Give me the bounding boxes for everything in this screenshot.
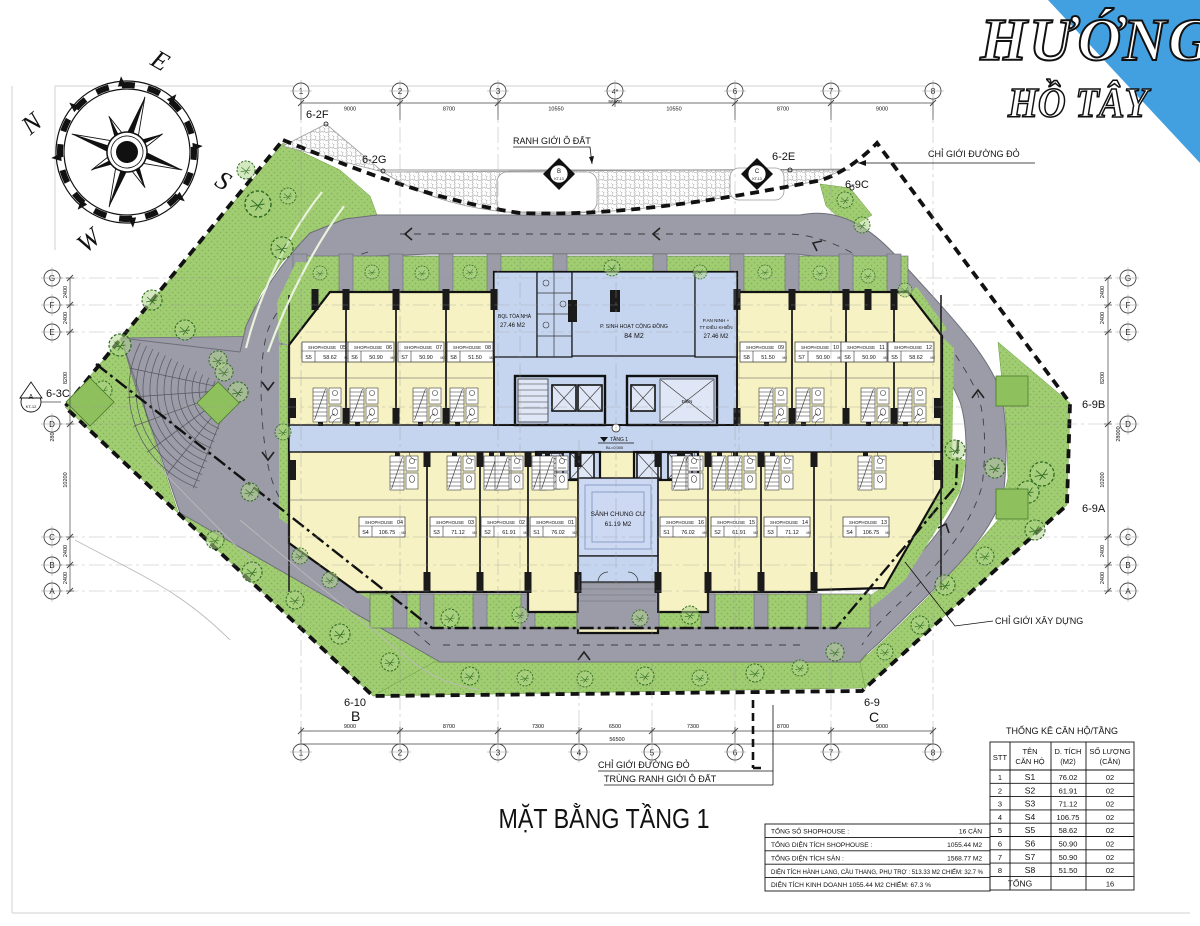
- svg-text:S1: S1: [1025, 772, 1036, 782]
- svg-text:7300: 7300: [532, 724, 544, 730]
- svg-text:71.12: 71.12: [785, 530, 799, 536]
- svg-text:09: 09: [778, 345, 784, 351]
- svg-text:50.90: 50.90: [862, 355, 876, 361]
- svg-text:9000: 9000: [876, 107, 888, 113]
- svg-text:3: 3: [998, 800, 1002, 809]
- svg-text:S7: S7: [1025, 852, 1036, 862]
- svg-text:6-3C: 6-3C: [46, 388, 70, 400]
- svg-text:8200: 8200: [1100, 372, 1106, 384]
- svg-text:58.62: 58.62: [1059, 826, 1078, 835]
- svg-text:RANH GIỚI Ô ĐẤT: RANH GIỚI Ô ĐẤT: [513, 136, 591, 146]
- svg-text:6-2G: 6-2G: [362, 154, 386, 166]
- svg-text:(CĂN): (CĂN): [1100, 757, 1121, 766]
- svg-text:S1: S1: [533, 530, 540, 536]
- svg-text:6: 6: [733, 749, 738, 758]
- svg-text:2400: 2400: [63, 312, 69, 324]
- svg-text:6-2E: 6-2E: [772, 151, 795, 163]
- svg-text:KT-13: KT-13: [554, 177, 563, 181]
- svg-text:SHOPHOUSE: SHOPHOUSE: [365, 520, 393, 525]
- svg-text:1055.44 M2: 1055.44 M2: [947, 842, 982, 849]
- svg-text:76.02: 76.02: [681, 530, 695, 536]
- svg-text:M2: M2: [884, 356, 889, 360]
- svg-text:S5: S5: [891, 355, 898, 361]
- svg-text:50.90: 50.90: [1059, 840, 1078, 849]
- svg-text:51.50: 51.50: [468, 355, 482, 361]
- svg-text:M2: M2: [886, 531, 891, 535]
- svg-text:106.75: 106.75: [863, 530, 880, 536]
- svg-text:14: 14: [802, 520, 808, 526]
- svg-text:S7: S7: [401, 355, 408, 361]
- svg-text:6: 6: [998, 840, 1002, 849]
- svg-text:06: 06: [386, 345, 392, 351]
- svg-text:P. SINH HOẠT CỘNG ĐỒNG: P. SINH HOẠT CỘNG ĐỒNG: [600, 323, 668, 330]
- svg-text:8: 8: [998, 866, 1002, 875]
- svg-text:2400: 2400: [1100, 572, 1106, 584]
- svg-text:D. TÍCH: D. TÍCH: [1055, 747, 1082, 756]
- svg-text:TRÙNG RANH GIỚI Ô ĐẤT: TRÙNG RANH GIỚI Ô ĐẤT: [604, 774, 717, 784]
- svg-text:76.02: 76.02: [1059, 773, 1078, 782]
- svg-text:2: 2: [398, 87, 403, 96]
- svg-text:SHOPHOUSE: SHOPHOUSE: [536, 520, 564, 525]
- svg-text:SHOPHOUSE: SHOPHOUSE: [436, 520, 464, 525]
- svg-text:B: B: [557, 169, 561, 175]
- svg-text:13: 13: [881, 520, 887, 526]
- svg-text:08: 08: [485, 345, 491, 351]
- svg-text:S4: S4: [1025, 812, 1036, 822]
- svg-text:12: 12: [926, 345, 932, 351]
- svg-text:MẶT BẰNG TẦNG 1: MẶT BẰNG TẦNG 1: [499, 803, 710, 834]
- svg-text:106.75: 106.75: [1057, 813, 1080, 822]
- svg-text:BL=0.000: BL=0.000: [606, 445, 624, 450]
- svg-text:S3: S3: [767, 530, 774, 536]
- svg-text:TT ĐIỀU KHIỂN: TT ĐIỀU KHIỂN: [699, 324, 732, 330]
- svg-text:9000: 9000: [344, 107, 356, 113]
- svg-text:76.02: 76.02: [551, 530, 565, 536]
- svg-text:50.90: 50.90: [816, 355, 830, 361]
- svg-text:51.50: 51.50: [761, 355, 775, 361]
- svg-text:02: 02: [1106, 826, 1114, 835]
- svg-text:2: 2: [398, 749, 403, 758]
- svg-text:7: 7: [998, 853, 1002, 862]
- svg-text:M2: M2: [391, 356, 396, 360]
- svg-text:27.46 M2: 27.46 M2: [703, 334, 729, 340]
- svg-text:8200: 8200: [63, 372, 69, 384]
- svg-text:02: 02: [1106, 773, 1114, 782]
- svg-text:SẢNH CHUNG CƯ: SẢNH CHUNG CƯ: [591, 509, 646, 518]
- svg-text:M2: M2: [754, 531, 759, 535]
- svg-text:M2: M2: [573, 531, 578, 535]
- svg-text:S6: S6: [1025, 839, 1036, 849]
- svg-text:5: 5: [650, 749, 655, 758]
- svg-text:C: C: [869, 709, 879, 725]
- svg-text:8: 8: [931, 87, 936, 96]
- svg-text:1568.77 M2: 1568.77 M2: [947, 855, 982, 862]
- svg-text:CHỈ GIỚI ĐƯỜNG ĐỎ: CHỈ GIỚI ĐƯỜNG ĐỎ: [598, 759, 690, 770]
- svg-text:S3: S3: [1025, 799, 1036, 809]
- svg-text:7300: 7300: [687, 724, 699, 730]
- svg-text:CHỈ GIỚI XÂY DỰNG: CHỈ GIỚI XÂY DỰNG: [995, 615, 1083, 626]
- svg-text:8700: 8700: [777, 107, 789, 113]
- svg-text:BQL TÒA NHÀ: BQL TÒA NHÀ: [498, 313, 532, 320]
- svg-text:S2: S2: [1025, 785, 1036, 795]
- svg-text:5: 5: [998, 826, 1002, 835]
- svg-text:KT-13: KT-13: [752, 177, 761, 181]
- svg-text:TỔNG DIỆN TÍCH SÀN :: TỔNG DIỆN TÍCH SÀN :: [771, 853, 844, 862]
- svg-text:6-9C: 6-9C: [845, 179, 869, 191]
- svg-text:1: 1: [998, 773, 1002, 782]
- svg-text:10: 10: [833, 345, 839, 351]
- svg-text:2400: 2400: [1100, 545, 1106, 557]
- svg-text:02: 02: [1106, 800, 1114, 809]
- svg-text:SHOPHOUSE: SHOPHOUSE: [666, 520, 694, 525]
- svg-text:03: 03: [468, 520, 474, 526]
- svg-text:HƯỚNG: HƯỚNG: [979, 7, 1200, 73]
- svg-text:02: 02: [1106, 840, 1114, 849]
- svg-text:6500: 6500: [609, 724, 621, 730]
- svg-text:S5: S5: [305, 355, 312, 361]
- svg-text:SHOPHOUSE: SHOPHOUSE: [404, 345, 432, 350]
- svg-text:M2: M2: [783, 356, 788, 360]
- svg-text:56600: 56600: [608, 99, 622, 105]
- svg-text:TỔNG: TỔNG: [1008, 877, 1033, 888]
- svg-text:05: 05: [340, 345, 346, 351]
- svg-text:STT: STT: [993, 753, 1008, 762]
- svg-text:A: A: [49, 587, 55, 596]
- svg-text:10550: 10550: [666, 107, 681, 113]
- svg-text:71.12: 71.12: [451, 530, 465, 536]
- svg-text:8700: 8700: [443, 724, 455, 730]
- svg-text:27.46 M2: 27.46 M2: [500, 323, 526, 329]
- svg-text:3: 3: [496, 749, 501, 758]
- svg-text:M2: M2: [441, 356, 446, 360]
- svg-text:58.62: 58.62: [909, 355, 923, 361]
- svg-text:S7: S7: [798, 355, 805, 361]
- svg-text:4: 4: [577, 749, 582, 758]
- svg-text:7: 7: [829, 749, 834, 758]
- svg-text:2400: 2400: [63, 286, 69, 298]
- svg-text:02: 02: [1106, 786, 1114, 795]
- svg-text:2400: 2400: [63, 572, 69, 584]
- svg-text:HỒ TÂY: HỒ TÂY: [1007, 79, 1151, 127]
- svg-text:SHOPHOUSE: SHOPHOUSE: [354, 345, 382, 350]
- svg-text:9000: 9000: [344, 724, 356, 730]
- svg-text:S4: S4: [362, 530, 369, 536]
- svg-text:15: 15: [749, 520, 755, 526]
- svg-text:S3: S3: [433, 530, 440, 536]
- svg-text:S8: S8: [743, 355, 750, 361]
- svg-text:6-2F: 6-2F: [306, 109, 329, 121]
- svg-text:2: 2: [998, 786, 1002, 795]
- svg-text:SHOPHOUSE: SHOPHOUSE: [487, 520, 515, 525]
- svg-text:6-9A: 6-9A: [1082, 503, 1106, 515]
- svg-text:SHOPHOUSE: SHOPHOUSE: [894, 345, 922, 350]
- svg-text:10550: 10550: [548, 107, 563, 113]
- svg-text:SHOPHOUSE: SHOPHOUSE: [770, 520, 798, 525]
- svg-text:S8: S8: [1025, 865, 1036, 875]
- svg-text:CĂN HỘ: CĂN HỘ: [1015, 757, 1044, 766]
- svg-text:16: 16: [1106, 879, 1114, 888]
- svg-text:SHOPHOUSE: SHOPHOUSE: [453, 345, 481, 350]
- svg-text:C: C: [755, 169, 760, 175]
- svg-text:8700: 8700: [777, 724, 789, 730]
- svg-text:ĐIỆN: ĐIỆN: [682, 397, 693, 404]
- svg-text:16 CĂN: 16 CĂN: [959, 827, 982, 836]
- svg-text:50.90: 50.90: [419, 355, 433, 361]
- svg-text:M2: M2: [473, 531, 478, 535]
- svg-text:02: 02: [1106, 853, 1114, 862]
- svg-text:71.12: 71.12: [1059, 800, 1078, 809]
- svg-text:11: 11: [879, 345, 885, 351]
- svg-text:6-9B: 6-9B: [1082, 399, 1105, 411]
- svg-text:16: 16: [698, 520, 704, 526]
- svg-text:58.62: 58.62: [323, 355, 337, 361]
- svg-text:SHOPHOUSE: SHOPHOUSE: [746, 345, 774, 350]
- svg-text:2400: 2400: [1100, 312, 1106, 324]
- svg-text:TỔNG DIỆN TÍCH SHOPHOUSE :: TỔNG DIỆN TÍCH SHOPHOUSE :: [771, 840, 873, 849]
- svg-text:THỐNG KÊ CĂN HỘ/TẦNG: THỐNG KÊ CĂN HỘ/TẦNG: [1006, 725, 1118, 736]
- svg-text:6-9: 6-9: [864, 697, 880, 709]
- svg-text:SHOPHOUSE: SHOPHOUSE: [308, 345, 336, 350]
- svg-text:SỐ LƯỢNG: SỐ LƯỢNG: [1089, 746, 1130, 756]
- svg-text:P.AN NINH +: P.AN NINH +: [703, 318, 730, 323]
- svg-text:61.91: 61.91: [502, 530, 516, 536]
- svg-text:M2: M2: [807, 531, 812, 535]
- svg-text:2400: 2400: [1100, 286, 1106, 298]
- svg-text:3: 3: [496, 87, 501, 96]
- svg-text:TÊN: TÊN: [1023, 747, 1038, 756]
- svg-text:51.50: 51.50: [1059, 866, 1078, 875]
- svg-text:1: 1: [299, 749, 304, 758]
- svg-text:SHOPHOUSE: SHOPHOUSE: [801, 345, 829, 350]
- svg-text:A: A: [29, 394, 34, 401]
- svg-text:M2: M2: [402, 531, 407, 535]
- svg-text:SHOPHOUSE: SHOPHOUSE: [849, 520, 877, 525]
- svg-text:S1: S1: [663, 530, 670, 536]
- svg-text:(M2): (M2): [1060, 757, 1076, 766]
- svg-text:50.90: 50.90: [1059, 853, 1078, 862]
- svg-text:TẦNG 1: TẦNG 1: [610, 436, 628, 443]
- svg-text:M2: M2: [490, 356, 495, 360]
- svg-text:1: 1: [299, 87, 304, 96]
- svg-text:8700: 8700: [443, 107, 455, 113]
- svg-text:106.75: 106.75: [379, 530, 396, 536]
- svg-text:SHOPHOUSE: SHOPHOUSE: [847, 345, 875, 350]
- svg-text:61.91: 61.91: [1059, 786, 1078, 795]
- svg-text:S2: S2: [714, 530, 721, 536]
- svg-text:50.90: 50.90: [369, 355, 383, 361]
- svg-text:10200: 10200: [63, 472, 69, 487]
- svg-text:B: B: [351, 708, 360, 724]
- svg-text:8: 8: [931, 749, 936, 758]
- svg-text:SHOPHOUSE: SHOPHOUSE: [717, 520, 745, 525]
- svg-text:S5: S5: [1025, 825, 1036, 835]
- svg-text:S2: S2: [484, 530, 491, 536]
- svg-text:10200: 10200: [1100, 472, 1106, 487]
- svg-text:02: 02: [1106, 866, 1114, 875]
- svg-text:6: 6: [733, 87, 738, 96]
- svg-text:2400: 2400: [63, 545, 69, 557]
- svg-text:07: 07: [436, 345, 442, 351]
- svg-text:84 M2: 84 M2: [624, 333, 644, 340]
- svg-text:7: 7: [829, 87, 834, 96]
- svg-text:S6: S6: [351, 355, 358, 361]
- svg-text:M2: M2: [703, 531, 708, 535]
- svg-text:S8: S8: [450, 355, 457, 361]
- svg-text:A: A: [1125, 587, 1131, 596]
- svg-text:S4: S4: [846, 530, 853, 536]
- svg-text:S6: S6: [844, 355, 851, 361]
- svg-text:KT-12: KT-12: [26, 404, 37, 409]
- svg-text:CHỈ GIỚI ĐƯỜNG ĐỎ: CHỈ GIỚI ĐƯỜNG ĐỎ: [928, 148, 1020, 159]
- svg-text:56500: 56500: [609, 737, 624, 743]
- svg-text:4: 4: [998, 813, 1002, 822]
- svg-text:61.19 M2: 61.19 M2: [605, 521, 632, 528]
- svg-text:02: 02: [1106, 813, 1114, 822]
- svg-text:01: 01: [568, 520, 574, 526]
